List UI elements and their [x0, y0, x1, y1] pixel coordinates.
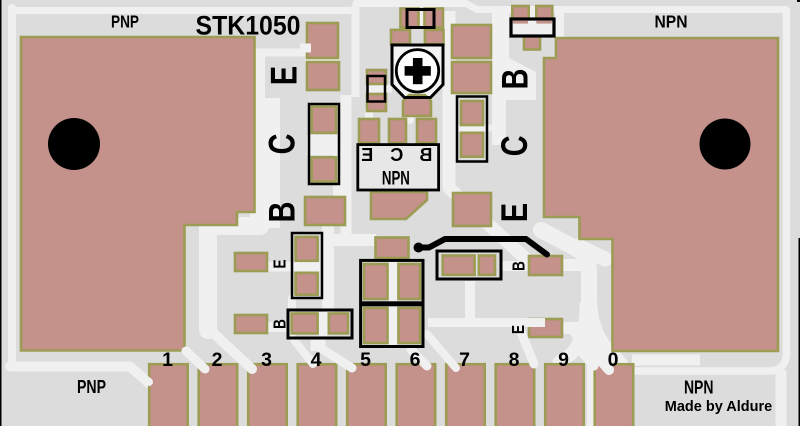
svg-text:STK1050: STK1050 — [196, 11, 301, 41]
svg-text:3: 3 — [261, 349, 272, 371]
svg-text:PNP: PNP — [77, 377, 106, 397]
svg-text:5: 5 — [360, 349, 371, 371]
svg-text:E: E — [264, 66, 305, 85]
svg-text:B: B — [262, 202, 303, 223]
svg-text:1: 1 — [162, 349, 173, 371]
svg-text:PNP: PNP — [111, 12, 139, 32]
svg-text:E: E — [494, 203, 535, 222]
svg-text:B: B — [271, 319, 290, 329]
svg-text:NPN: NPN — [684, 378, 714, 398]
svg-text:7: 7 — [459, 349, 470, 371]
svg-text:8: 8 — [509, 349, 520, 371]
svg-text:NPN: NPN — [655, 12, 688, 32]
svg-text:6: 6 — [410, 349, 421, 371]
svg-text:E: E — [361, 145, 373, 165]
svg-text:C: C — [262, 134, 303, 155]
svg-text:C: C — [390, 145, 403, 165]
svg-text:B: B — [495, 68, 536, 89]
svg-text:B: B — [419, 145, 432, 165]
svg-text:4: 4 — [311, 349, 322, 371]
svg-text:2: 2 — [212, 349, 223, 371]
svg-text:E: E — [271, 259, 290, 268]
svg-text:B: B — [510, 261, 529, 271]
svg-text:Made by Aldure: Made by Aldure — [665, 399, 772, 415]
svg-text:9: 9 — [558, 349, 569, 371]
svg-text:E: E — [509, 325, 528, 334]
svg-text:0: 0 — [608, 349, 619, 371]
svg-text:NPN: NPN — [382, 169, 410, 190]
svg-text:C: C — [494, 135, 535, 156]
